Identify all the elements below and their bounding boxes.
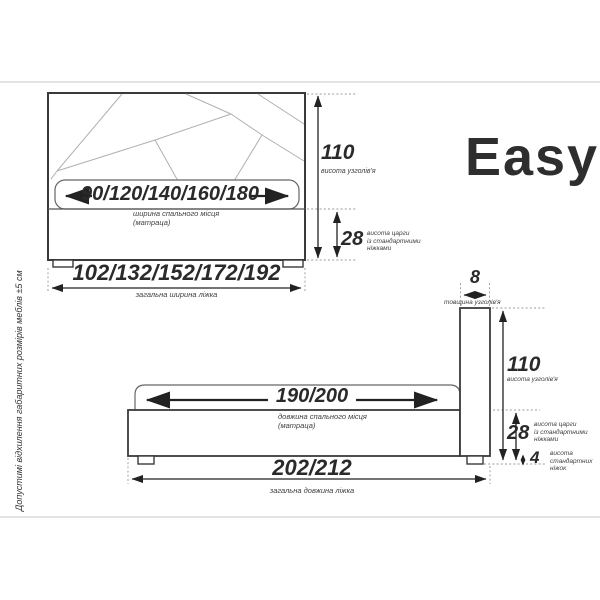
front-headboard-outline (48, 93, 305, 260)
front-headboard-height-value: 110 (321, 142, 354, 163)
side-headboard-height-value: 110 (507, 354, 540, 375)
front-rail-height-label: висота царги із стандартними ніжками (367, 230, 421, 253)
front-mattress-width-value: 90/120/140/160/180 (48, 184, 292, 204)
brand-logo: Easy (462, 126, 600, 188)
side-headboard-post (460, 308, 490, 456)
side-rail-height-label: висота царги із стандартними ніжками (534, 421, 588, 444)
side-mattress-length-value: 190/200 (192, 386, 432, 406)
side-total-length-value: 202/212 (192, 457, 432, 479)
front-rail-height-value: 28 (341, 229, 363, 249)
front-total-width-label: загальна ширина ліжка (48, 291, 305, 300)
drawing-lines (0, 0, 600, 600)
side-left-foot (138, 456, 154, 464)
side-headboard-height-label: висота узголів'я (507, 376, 558, 384)
front-headboard-height-label: висота узголів'я (321, 168, 376, 176)
side-view-drawing (128, 283, 546, 484)
side-headboard-thickness-value: 8 (455, 268, 495, 286)
front-total-width-value: 102/132/152/172/192 (48, 262, 305, 284)
front-mattress-width-label: ширина спального місця (матраца) (133, 210, 219, 228)
side-mattress-length-label: довжина спального місця (матраца) (278, 413, 367, 431)
bed-dimension-drawing: Easy 90/120/140/160/180 ширина спального… (0, 0, 600, 600)
leg-dim-arrow-down (521, 460, 526, 466)
side-leg-height-value: 4 (530, 449, 539, 466)
side-leg-height-label: висота стандартних ніжок (550, 450, 592, 473)
side-right-foot (467, 456, 483, 464)
side-headboard-thickness-label: товщина узголів'я (444, 299, 501, 307)
tolerance-note: Допустимі відхилення габаритних розмірів… (14, 270, 24, 511)
side-total-length-label: загальна довжина ліжка (212, 487, 412, 496)
leg-dim-arrow-up (521, 455, 526, 461)
side-rail-height-value: 28 (507, 423, 529, 443)
